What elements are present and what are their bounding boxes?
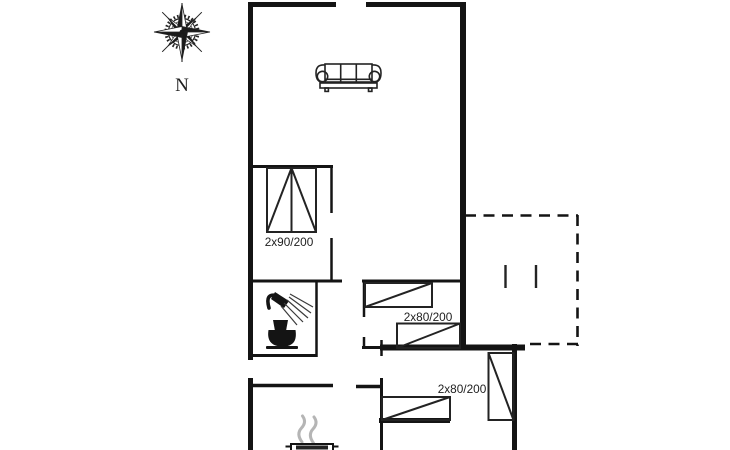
double-bed-icon-bedroom1 bbox=[267, 168, 316, 232]
north-label: N bbox=[175, 75, 189, 96]
terrace-door-marks bbox=[506, 265, 537, 288]
compass-rose-icon bbox=[154, 3, 210, 62]
sofa-icon bbox=[316, 64, 381, 91]
bed-size-label-bedroom1: 2x90/200 bbox=[265, 235, 314, 249]
floor-plan-page: N bbox=[0, 0, 730, 450]
toilet-icon bbox=[266, 320, 298, 349]
terrace-dashed-outline bbox=[465, 215, 578, 346]
bed-size-label-bedroom2: 2x80/200 bbox=[404, 310, 453, 324]
stove-icon bbox=[286, 416, 339, 450]
bed-size-label-bedroom3: 2x80/200 bbox=[438, 382, 487, 396]
